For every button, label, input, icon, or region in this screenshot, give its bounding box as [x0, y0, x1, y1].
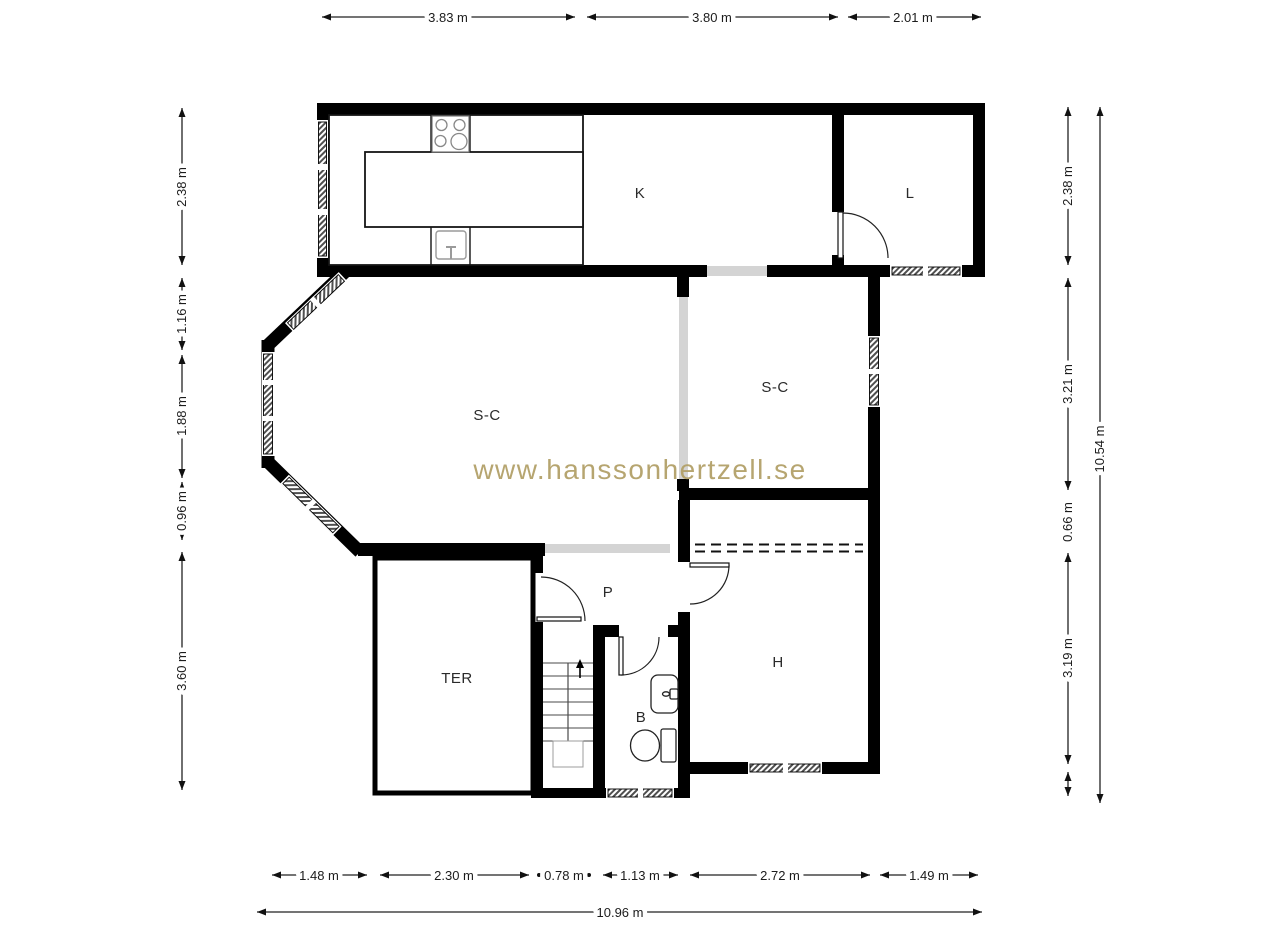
dim-label: 2.38 m: [174, 167, 189, 207]
doors: [537, 212, 888, 675]
dim-label: 2.01 m: [893, 10, 933, 25]
door-arc-terrace: [541, 577, 585, 621]
wall-segment: [531, 622, 543, 798]
dimensions-bottom: 1.48 m 2.30 m 0.78 m 1.13 m 2.72 m 1.49 …: [257, 868, 982, 920]
wall-segment: [605, 625, 619, 637]
toilet-bowl: [631, 730, 660, 761]
wall-segment: [317, 103, 985, 115]
toilet-tank: [661, 729, 676, 762]
dimension-dot: [587, 873, 591, 877]
opening-kitchen-sc: [707, 266, 767, 276]
dim-label: 1.49 m: [909, 868, 949, 883]
door-arc-living: [843, 213, 888, 258]
dim-label: 1.88 m: [174, 396, 189, 436]
stair-lower-flight: [553, 741, 583, 767]
dim-label: 3.80 m: [692, 10, 732, 25]
toilet-icon: [631, 729, 677, 762]
wall-segment: [668, 625, 678, 637]
window-sill: [262, 380, 275, 385]
stairs: [543, 659, 593, 767]
door-arc-hall: [690, 565, 729, 604]
wall-segment: [832, 115, 844, 212]
wall-openings: [545, 266, 767, 553]
room-label-terrace: TER: [441, 670, 473, 687]
wall-segment: [358, 543, 545, 556]
room-label-passage: P: [603, 584, 614, 601]
dim-label: 3.19 m: [1060, 638, 1075, 678]
room-label-living: L: [906, 185, 915, 202]
wall-segment: [868, 500, 880, 774]
floorplan-svg: K L S-C S-C P TER B H www.hanssonhertzel…: [0, 0, 1280, 933]
dimensions-right: 2.38 m 3.21 m 0.66 m 3.19 m 10.54 m: [1060, 107, 1107, 803]
window-bay-diagonal-bottom: [280, 475, 341, 535]
window-sill: [262, 416, 275, 421]
wall-segment: [317, 265, 707, 277]
window-sill: [317, 209, 328, 215]
window-sill: [783, 762, 788, 774]
room-label-hall: H: [772, 654, 783, 671]
window-bay-diagonal-top: [285, 272, 347, 332]
wall-segment: [531, 556, 543, 573]
wall-segment: [678, 612, 690, 798]
wall-segment: [678, 500, 690, 562]
dim-label: 2.72 m: [760, 868, 800, 883]
wall-segment: [677, 277, 689, 297]
window-glass: [264, 354, 273, 454]
basin-tap: [670, 689, 678, 699]
dim-label: 2.30 m: [434, 868, 474, 883]
counter-inner: [365, 152, 583, 227]
floorplan-page: K L S-C S-C P TER B H www.hanssonhertzel…: [0, 0, 1280, 933]
dimensions-left: 2.38 m 1.16 m 1.88 m 0.96 m 3.60 m: [174, 108, 189, 790]
dim-label-total: 10.54 m: [1092, 426, 1107, 473]
room-label-kitchen: K: [635, 185, 646, 202]
dim-label: 3.83 m: [428, 10, 468, 25]
stove-icon: [432, 116, 469, 152]
wall-segment: [679, 488, 880, 500]
opening-sc-passage: [545, 544, 670, 553]
window-sill: [868, 369, 880, 374]
door-leaf-bath: [619, 637, 623, 675]
room-label-bath: B: [636, 709, 647, 726]
window-sill: [317, 164, 328, 170]
dim-label: 0.78 m: [544, 868, 584, 883]
dim-label: 2.38 m: [1060, 166, 1075, 206]
room-label-sc-left: S-C: [473, 407, 500, 424]
dimensions-top: 3.83 m 3.80 m 2.01 m: [322, 10, 981, 25]
door-leaf-hall: [690, 563, 729, 567]
dim-label: 1.16 m: [174, 294, 189, 334]
dim-label: 0.96 m: [174, 491, 189, 531]
dim-label: 1.13 m: [620, 868, 660, 883]
kitchen-counter: [329, 115, 583, 265]
watermark-text: www.hanssonhertzell.se: [472, 454, 806, 485]
window-glass: [319, 122, 327, 256]
washbasin-icon: [651, 675, 678, 713]
dim-label: 3.21 m: [1060, 364, 1075, 404]
dashed-beam: [695, 545, 863, 552]
window-sill: [923, 265, 928, 277]
door-leaf-living: [838, 212, 843, 258]
door-arc-bath: [621, 637, 659, 675]
basin-drain: [663, 692, 670, 696]
window-sill: [638, 788, 643, 798]
wall-segment: [973, 115, 985, 277]
door-leaf-terrace: [537, 617, 581, 621]
room-label-sc-right: S-C: [761, 379, 788, 396]
wall-segment: [593, 625, 605, 798]
dim-label: 3.60 m: [174, 651, 189, 691]
dim-label-total: 10.96 m: [597, 905, 644, 920]
dimension-dot: [537, 873, 541, 877]
dim-label: 0.66 m: [1060, 502, 1075, 542]
dim-label: 1.48 m: [299, 868, 339, 883]
kitchen-sink-icon: [436, 231, 466, 259]
